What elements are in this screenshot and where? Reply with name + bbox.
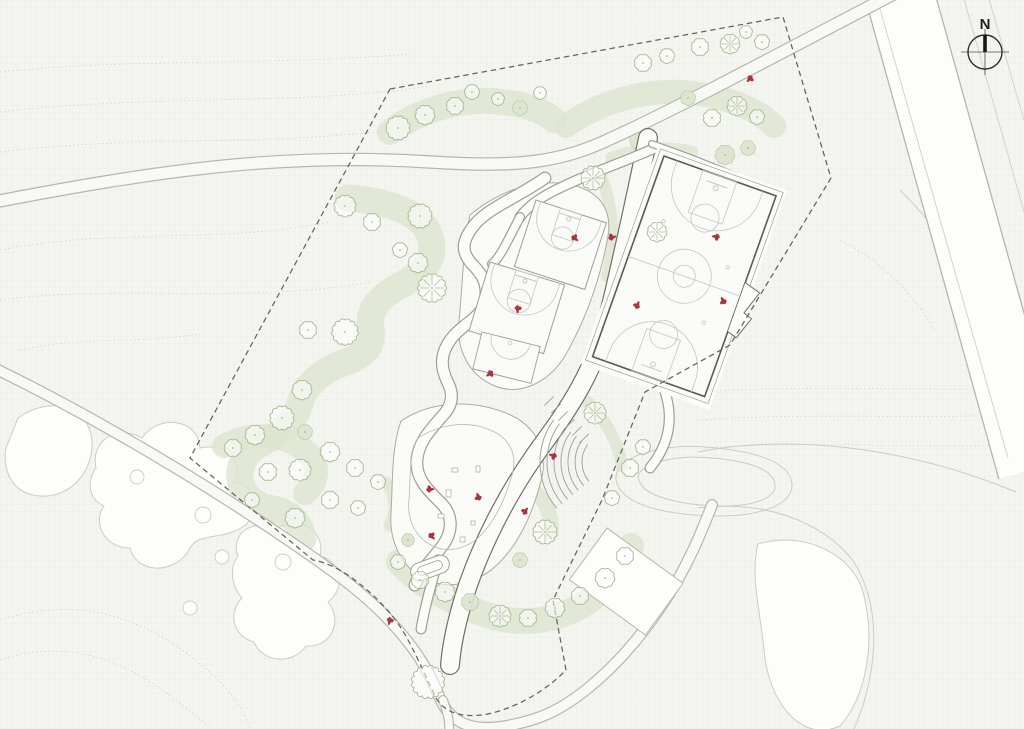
stair-step bbox=[572, 426, 581, 435]
shrub-circle bbox=[183, 601, 197, 615]
shrub-circle bbox=[195, 507, 211, 523]
contour-line bbox=[0, 54, 410, 72]
compass: N bbox=[961, 16, 1009, 75]
stair-step bbox=[579, 434, 588, 443]
contour-line bbox=[0, 610, 250, 729]
contour-line bbox=[840, 240, 935, 330]
road bbox=[443, 700, 449, 729]
play-equipment bbox=[476, 466, 480, 472]
site-plan: N bbox=[0, 0, 1024, 729]
contour-line bbox=[700, 388, 1014, 392]
contour-line bbox=[0, 651, 210, 729]
contour-line bbox=[0, 126, 415, 152]
play-equipment bbox=[446, 490, 451, 497]
shrub-circle bbox=[215, 550, 229, 564]
contour-line bbox=[0, 282, 370, 300]
site-plan-drawing: N bbox=[0, 0, 1024, 729]
compass-label: N bbox=[980, 16, 991, 33]
contour-line bbox=[20, 334, 200, 350]
shrub-circle bbox=[275, 554, 291, 570]
play-equipment bbox=[460, 537, 465, 542]
main-road bbox=[899, 0, 1024, 470]
shrub-circle bbox=[130, 470, 144, 484]
person-figure bbox=[549, 451, 558, 460]
contour-line bbox=[698, 414, 1014, 420]
green-band bbox=[390, 101, 554, 132]
play-equipment bbox=[452, 468, 458, 472]
north-needle bbox=[983, 35, 987, 52]
building-pad bbox=[569, 528, 683, 635]
lane-line bbox=[987, 0, 1024, 148]
contour-line bbox=[0, 222, 330, 250]
field-shape bbox=[5, 406, 92, 496]
basketball-court bbox=[580, 145, 796, 413]
play-equipment bbox=[471, 521, 475, 525]
stair-step bbox=[544, 396, 553, 405]
terrain-line bbox=[698, 444, 1016, 492]
contour-line bbox=[0, 86, 430, 112]
play-equipment bbox=[438, 514, 444, 518]
field-shape bbox=[755, 540, 869, 729]
amphitheater-steps bbox=[568, 436, 578, 490]
amphitheater-steps bbox=[582, 444, 589, 481]
amphitheater-steps bbox=[561, 432, 573, 495]
contour-line bbox=[704, 444, 1014, 448]
